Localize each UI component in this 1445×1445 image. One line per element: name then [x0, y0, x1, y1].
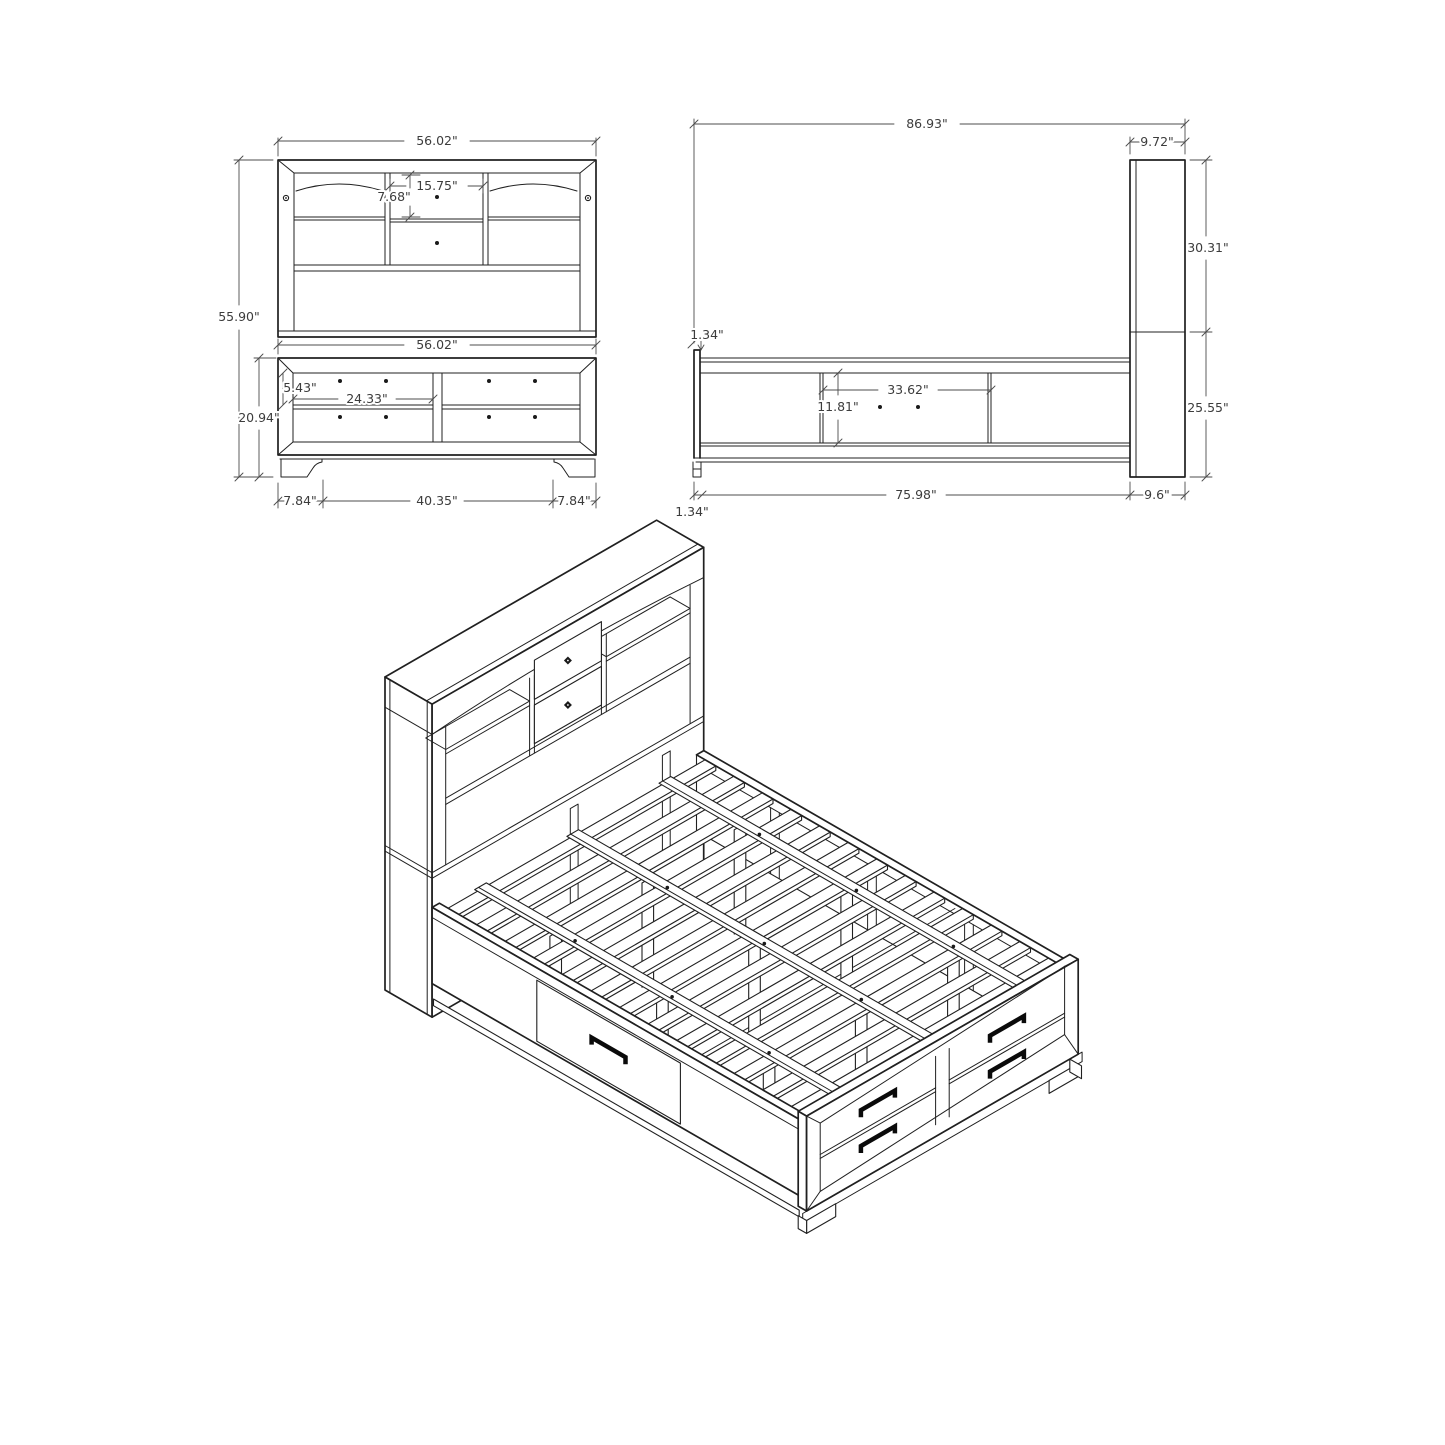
dim-side-overall-length: 86.93": [906, 116, 948, 131]
technical-drawing-canvas: 56.02" 55.90" 15.75" 7.68" 56.02" 5.43" …: [0, 0, 1445, 1445]
dim-side-rail-length: 75.98": [895, 487, 937, 502]
isometric-view: [385, 520, 1082, 1233]
dim-front-overall-width: 56.02": [416, 133, 458, 148]
dim-side-footboard-lip: 1.34": [690, 327, 724, 342]
dim-side-opening-height: 11.81": [817, 399, 859, 414]
dim-side-footboard-thickness: 1.34": [675, 504, 709, 519]
side-rail-outline: [693, 350, 1130, 477]
dim-front-center-opening-width: 15.75": [416, 178, 458, 193]
dim-side-headboard-upper-height: 30.31": [1187, 240, 1229, 255]
front-dimensions: 56.02" 55.90" 15.75" 7.68" 56.02" 5.43" …: [218, 133, 600, 508]
dim-front-feet-span: 40.35": [416, 493, 458, 508]
dim-front-footboard-height: 20.94": [238, 410, 280, 425]
blueprint-page: 56.02" 55.90" 15.75" 7.68" 56.02" 5.43" …: [0, 0, 1445, 1445]
dim-side-opening-width: 33.62": [887, 382, 929, 397]
dim-front-overall-height: 55.90": [218, 309, 260, 324]
side-headboard-outline: [1130, 160, 1185, 477]
dim-front-drawer-height: 5.43": [283, 380, 317, 395]
dim-front-foot-inset-left: 7.84": [283, 493, 317, 508]
dim-side-headboard-lower-height: 25.55": [1187, 400, 1229, 415]
front-view: 56.02" 55.90" 15.75" 7.68" 56.02" 5.43" …: [218, 133, 600, 508]
side-view: 86.93" 9.72" 30.31" 25.55" 1.34" 33.62" …: [675, 116, 1229, 519]
dim-side-headboard-depth: 9.72": [1140, 134, 1174, 149]
dim-side-base-depth: 9.6": [1144, 487, 1170, 502]
dim-front-footboard-width: 56.02": [416, 337, 458, 352]
dim-front-drawer-width: 24.33": [346, 391, 388, 406]
side-dimensions: 86.93" 9.72" 30.31" 25.55" 1.34" 33.62" …: [675, 116, 1229, 519]
front-footboard-outline: [278, 358, 596, 477]
dim-front-center-opening-height: 7.68": [377, 189, 411, 204]
dim-front-foot-inset-right: 7.84": [557, 493, 591, 508]
